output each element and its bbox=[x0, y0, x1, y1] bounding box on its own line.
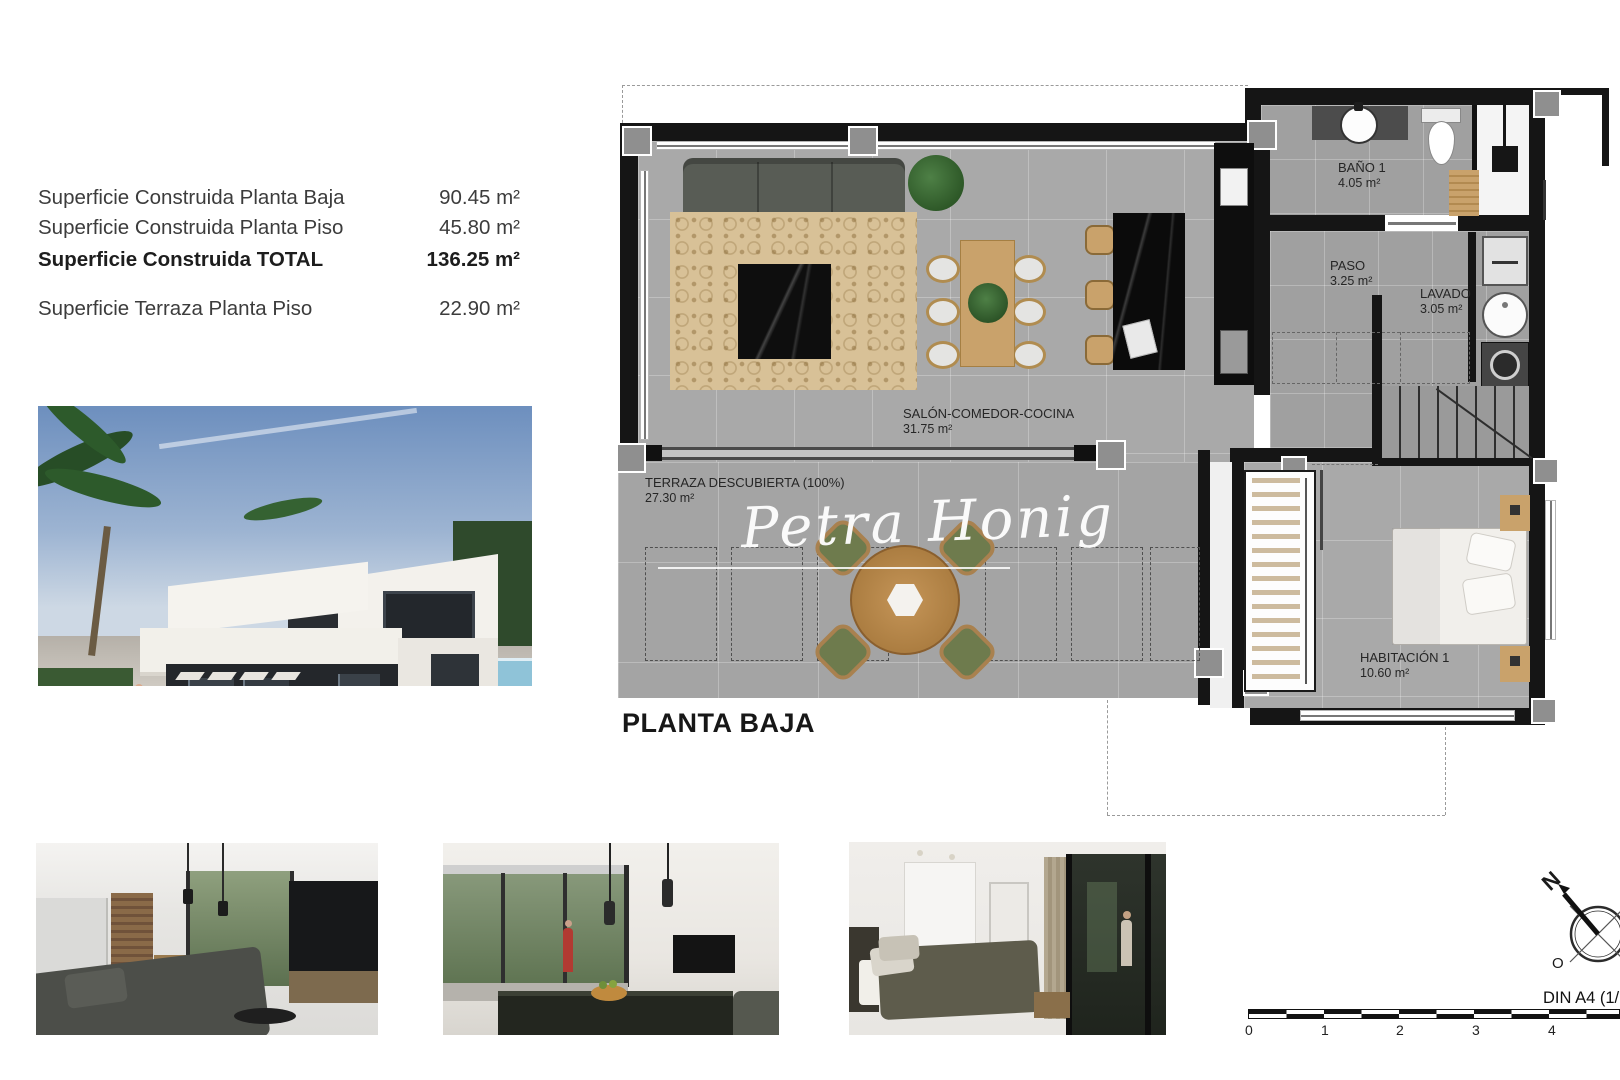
scale-tick: 4 bbox=[1548, 1022, 1556, 1038]
cloud bbox=[159, 408, 417, 449]
boundary-dash-bottom bbox=[1107, 815, 1445, 816]
dining-chair bbox=[1012, 341, 1046, 369]
window-mullion bbox=[624, 865, 629, 987]
wall-segment bbox=[1529, 460, 1545, 725]
wall-segment bbox=[1245, 215, 1385, 231]
fruit bbox=[609, 980, 617, 988]
bed-fold bbox=[1392, 528, 1440, 645]
cabinet bbox=[36, 898, 108, 976]
surface-value: 45.80 m² bbox=[439, 216, 520, 240]
window-header bbox=[443, 865, 628, 874]
fruit-bowl bbox=[591, 985, 627, 1001]
column-marker bbox=[616, 443, 646, 473]
wardrobe-hangers bbox=[1252, 478, 1300, 684]
room-area: 10.60 m² bbox=[1360, 666, 1449, 682]
room-name: TERRAZA DESCUBIERTA (100%) bbox=[645, 475, 845, 491]
interior-photo-bedroom bbox=[849, 842, 1166, 1035]
shower-pipe bbox=[1503, 105, 1506, 148]
person-head bbox=[1123, 911, 1131, 919]
interior-photo-kitchen bbox=[443, 843, 779, 1035]
bar-stool bbox=[1085, 280, 1115, 310]
surface-label: Superficie Terraza Planta Piso bbox=[38, 297, 312, 321]
scale-bar bbox=[1248, 1009, 1620, 1019]
stairs-projection-dash bbox=[1400, 332, 1401, 382]
column-marker bbox=[1531, 698, 1557, 724]
plan-title: PLANTA BAJA bbox=[622, 708, 815, 739]
brochure-page: Superficie Construida Planta Baja 90.45 … bbox=[0, 0, 1620, 1080]
wall-thin bbox=[1320, 470, 1323, 550]
wall-segment bbox=[620, 123, 1262, 141]
wardrobe-rod bbox=[1305, 478, 1307, 684]
column-marker bbox=[622, 126, 652, 156]
surface-value: 136.25 m² bbox=[427, 248, 520, 272]
pendant-cord bbox=[609, 843, 611, 905]
wall-thin bbox=[1543, 180, 1546, 220]
sofa-arm bbox=[733, 991, 779, 1035]
nightstand-photo bbox=[1034, 992, 1070, 1018]
pendant-lamp bbox=[604, 901, 615, 925]
sideboard bbox=[289, 971, 378, 1003]
spotlight bbox=[949, 854, 955, 860]
glass-wall bbox=[443, 873, 628, 985]
palm-frond bbox=[42, 461, 164, 515]
scale-tick: 2 bbox=[1396, 1022, 1404, 1038]
greenery-reflection bbox=[1087, 882, 1117, 972]
sliding-door-rail bbox=[640, 447, 1096, 460]
column-marker bbox=[848, 126, 878, 156]
room-name: LAVADO bbox=[1420, 286, 1471, 302]
villa-photo bbox=[38, 406, 532, 686]
window-mullion bbox=[501, 873, 505, 985]
counter-sink bbox=[1220, 168, 1248, 206]
bar-stool bbox=[1085, 335, 1115, 365]
sink-drain bbox=[1502, 302, 1508, 308]
wall-segment bbox=[1602, 88, 1609, 166]
column-marker bbox=[1533, 90, 1561, 118]
shower-partition bbox=[1472, 105, 1477, 175]
room-area: 31.75 m² bbox=[903, 422, 1074, 438]
room-label-habitacion: HABITACIÓN 1 10.60 m² bbox=[1360, 650, 1449, 682]
interior-photo-living bbox=[36, 843, 378, 1035]
window-band-left bbox=[640, 170, 649, 440]
din-format-label: DIN A4 (1/7 bbox=[1543, 989, 1620, 1008]
boundary-dash bbox=[1445, 722, 1446, 815]
coffee-table bbox=[738, 264, 831, 359]
pendant-lamp bbox=[183, 889, 193, 904]
wall-segment bbox=[1254, 141, 1270, 395]
wall-segment bbox=[620, 123, 638, 465]
table-plant bbox=[968, 283, 1008, 323]
ceiling-dash bbox=[1312, 464, 1378, 465]
shower-head bbox=[1492, 146, 1518, 172]
bar-stool bbox=[1085, 225, 1115, 255]
fruit bbox=[599, 981, 607, 989]
counter-appliance bbox=[1220, 330, 1248, 374]
pergola-dash bbox=[1071, 547, 1143, 661]
surface-row-total: Superficie Construida TOTAL 136.25 m² bbox=[38, 248, 520, 272]
room-label-paso: PASO 3.25 m² bbox=[1330, 258, 1372, 290]
compass-north-label: N bbox=[1540, 866, 1565, 895]
surface-value: 22.90 m² bbox=[439, 297, 520, 321]
person-figure bbox=[1121, 920, 1132, 966]
pendant-cord bbox=[222, 843, 224, 903]
coffee-table-photo bbox=[234, 1008, 296, 1024]
room-name: BAÑO 1 bbox=[1338, 160, 1386, 176]
tv-panel bbox=[673, 935, 735, 973]
pillow-photo bbox=[878, 935, 920, 962]
bath-mat bbox=[1449, 170, 1479, 216]
nightstand-item bbox=[1510, 656, 1520, 666]
glass-door bbox=[338, 674, 380, 686]
pendant-lamp bbox=[218, 901, 228, 916]
wall-segment bbox=[1245, 88, 1545, 105]
dining-chair bbox=[926, 341, 960, 369]
person-red-dress bbox=[563, 928, 573, 972]
surface-row: Superficie Construida Planta Piso 45.80 … bbox=[38, 216, 520, 240]
room-area: 4.05 m² bbox=[1338, 176, 1386, 192]
scale-tick: 3 bbox=[1472, 1022, 1480, 1038]
person-head bbox=[135, 684, 143, 686]
room-label-salon: SALÓN-COMEDOR-COCINA 31.75 m² bbox=[903, 406, 1074, 438]
wood-slat-wall bbox=[111, 893, 153, 968]
dining-chair bbox=[1012, 298, 1046, 326]
surface-value: 90.45 m² bbox=[439, 186, 520, 210]
stairs-projection-dash bbox=[1336, 332, 1337, 382]
column-marker bbox=[1096, 440, 1126, 470]
pendant-cord bbox=[187, 843, 189, 891]
pergola-dash bbox=[985, 547, 1057, 661]
stairs bbox=[1382, 386, 1529, 458]
scale-tick: 1 bbox=[1321, 1022, 1329, 1038]
room-area: 3.05 m² bbox=[1420, 302, 1471, 318]
nightstand-item bbox=[1510, 505, 1520, 515]
boundary-dash-top bbox=[622, 85, 1248, 86]
room-label-lavado: LAVADO 3.05 m² bbox=[1420, 286, 1471, 318]
scale-tick: 0 bbox=[1245, 1022, 1253, 1038]
door-leaf bbox=[1388, 222, 1456, 225]
pergola-dash bbox=[731, 547, 803, 661]
stairs-projection-dash bbox=[1272, 332, 1470, 384]
wall-segment bbox=[1529, 218, 1545, 460]
surface-label: Superficie Construida Planta Piso bbox=[38, 216, 343, 240]
dining-chair bbox=[926, 255, 960, 283]
room-label-bano: BAÑO 1 4.05 m² bbox=[1338, 160, 1386, 192]
bedroom-window-side bbox=[1545, 500, 1556, 640]
room-name: HABITACIÓN 1 bbox=[1360, 650, 1449, 666]
palm-frond bbox=[242, 493, 324, 525]
room-name: SALÓN-COMEDOR-COCINA bbox=[903, 406, 1074, 422]
faucet bbox=[1354, 102, 1363, 111]
boundary-dash bbox=[1107, 700, 1108, 815]
bushes bbox=[38, 668, 133, 686]
room-area: 3.25 m² bbox=[1330, 274, 1372, 290]
surface-row: Superficie Terraza Planta Piso 22.90 m² bbox=[38, 297, 520, 321]
column-marker bbox=[1533, 458, 1559, 484]
surface-row: Superficie Construida Planta Baja 90.45 … bbox=[38, 186, 520, 210]
pillow bbox=[1461, 572, 1516, 615]
spotlight bbox=[917, 850, 923, 856]
pergola-dash bbox=[1150, 547, 1200, 661]
pendant-lamp bbox=[662, 879, 673, 907]
glass-frame bbox=[1145, 854, 1151, 1035]
watermark-underline bbox=[658, 567, 1010, 569]
plant bbox=[908, 155, 964, 211]
surface-label: Superficie Construida Planta Baja bbox=[38, 186, 345, 210]
compass-west-label: O bbox=[1552, 955, 1564, 972]
laundry-sink bbox=[1482, 292, 1528, 338]
washer-drum bbox=[1490, 350, 1520, 380]
compass-icon: N O S bbox=[1540, 862, 1620, 977]
cabinet-handle bbox=[1492, 261, 1518, 264]
window-band-top bbox=[656, 141, 1216, 150]
washbasin bbox=[1340, 106, 1378, 144]
dining-chair bbox=[1012, 255, 1046, 283]
room-name: PASO bbox=[1330, 258, 1372, 274]
pendant-cord bbox=[667, 843, 669, 883]
bedroom-window bbox=[1300, 710, 1515, 721]
scale-bar-bottom bbox=[1249, 1014, 1619, 1018]
surface-label: Superficie Construida TOTAL bbox=[38, 248, 323, 272]
door-jamb bbox=[1074, 445, 1096, 461]
person-head bbox=[565, 920, 572, 927]
dining-chair bbox=[926, 298, 960, 326]
lower-window bbox=[431, 654, 479, 686]
